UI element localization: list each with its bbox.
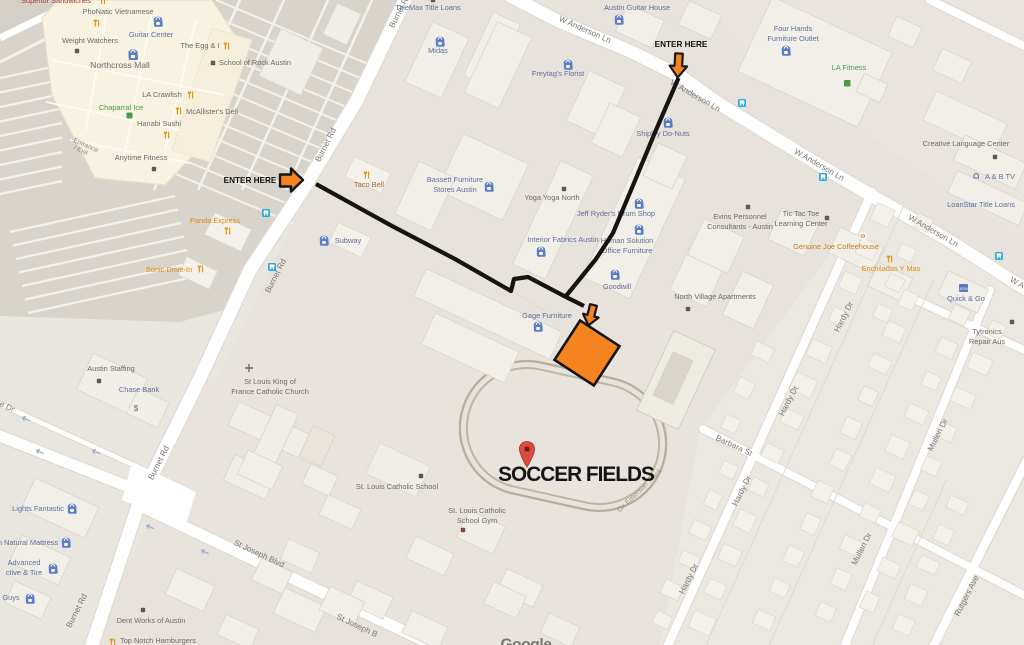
svg-text:Weight Watchers: Weight Watchers [62,36,118,45]
svg-text:Learning Center: Learning Center [774,219,828,228]
svg-text:SOCCER FIELDS: SOCCER FIELDS [498,463,655,486]
svg-text:Panda Express: Panda Express [190,216,240,225]
svg-text:Freytag's Florist: Freytag's Florist [532,69,584,78]
svg-text:Yoga Yoga North: Yoga Yoga North [524,193,579,202]
svg-text:Austin Staffing: Austin Staffing [87,364,135,373]
svg-text:Four Hands: Four Hands [774,24,813,33]
svg-text:Google: Google [501,637,553,645]
svg-text:Bassett Furniture: Bassett Furniture [427,175,483,184]
svg-text:Chaparral Ice: Chaparral Ice [99,103,143,112]
svg-text:The Egg & I: The Egg & I [180,41,219,50]
svg-text:Shipley Do-Nuts: Shipley Do-Nuts [636,129,690,138]
svg-text:Chase Bank: Chase Bank [119,385,160,394]
svg-text:Dent Works of Austin: Dent Works of Austin [117,616,186,625]
svg-text:St. Louis Catholic: St. Louis Catholic [448,506,506,515]
svg-text:Goodwill: Goodwill [603,282,632,291]
svg-text:Consultants - Austin: Consultants - Austin [707,222,773,231]
svg-text:France Catholic Church: France Catholic Church [231,387,309,396]
svg-text:Tic Tac Toe: Tic Tac Toe [783,209,820,218]
svg-text:Repair Aus: Repair Aus [969,337,1005,346]
svg-text:Top Notch Hamburgers: Top Notch Hamburgers [120,636,196,645]
svg-text:Superior Sandwiches: Superior Sandwiches [21,0,91,5]
svg-text:Guitar Center: Guitar Center [129,30,174,39]
svg-text:Creative Language Center: Creative Language Center [923,139,1010,148]
svg-text:Genuine Joe Coffeehouse: Genuine Joe Coffeehouse [793,242,879,251]
svg-text:St Louis King of: St Louis King of [244,377,297,386]
svg-text:Enchiladas Y Mas: Enchiladas Y Mas [862,264,921,273]
svg-text:TitleMax Title Loans: TitleMax Title Loans [395,3,461,12]
svg-text:ENTER HERE: ENTER HERE [224,176,277,185]
svg-text:PhoNatic Vietnamese: PhoNatic Vietnamese [83,7,154,16]
svg-text:Office Furniture: Office Furniture [602,246,653,255]
svg-text:$: $ [134,404,139,413]
svg-text:Quick & Go: Quick & Go [947,294,985,303]
svg-text:School Gym: School Gym [457,516,497,525]
svg-text:St. Louis Catholic School: St. Louis Catholic School [356,482,439,491]
svg-text:Sonic Drive-In: Sonic Drive-In [146,265,192,274]
svg-text:Midas: Midas [428,46,448,55]
svg-text:ctive & Tire: ctive & Tire [6,568,43,577]
svg-text:North Village Apartments: North Village Apartments [674,292,756,301]
svg-text:Evins Personnel: Evins Personnel [713,212,767,221]
svg-text:Gage Furniture: Gage Furniture [522,311,572,320]
svg-text:ENTER HERE: ENTER HERE [655,40,708,49]
svg-text:School of Rock Austin: School of Rock Austin [219,58,291,67]
svg-text:Tytronics: Tytronics [972,327,1002,336]
svg-text:Taco Bell: Taco Bell [354,180,384,189]
svg-text:Austin Guitar House: Austin Guitar House [604,3,670,12]
svg-text:Northcross Mall: Northcross Mall [90,60,150,70]
svg-text:Anytime Fitness: Anytime Fitness [115,153,168,162]
svg-text:Interior Fabrics Austin: Interior Fabrics Austin [527,235,598,244]
svg-text:Lights Fantastic: Lights Fantastic [12,504,64,513]
svg-text:Subway: Subway [335,236,362,245]
svg-text:Furniture Outlet: Furniture Outlet [767,34,818,43]
svg-text:Hanabi Sushi: Hanabi Sushi [137,119,181,128]
svg-text:ATM: ATM [959,286,967,291]
svg-text:Guys: Guys [2,593,20,602]
svg-text:McAllister's Deli: McAllister's Deli [186,107,238,116]
svg-text:Advanced: Advanced [8,558,41,567]
svg-text:n Natural Mattress: n Natural Mattress [0,538,58,547]
svg-text:LA Fitness: LA Fitness [832,63,867,72]
svg-text:Jeff Ryder's Drum Shop: Jeff Ryder's Drum Shop [577,209,655,218]
svg-text:Stores Austin: Stores Austin [433,185,477,194]
svg-text:LoanStar Title Loans: LoanStar Title Loans [947,200,1015,209]
svg-text:LA Crawfish: LA Crawfish [142,90,181,99]
svg-text:A & B TV: A & B TV [985,172,1015,181]
